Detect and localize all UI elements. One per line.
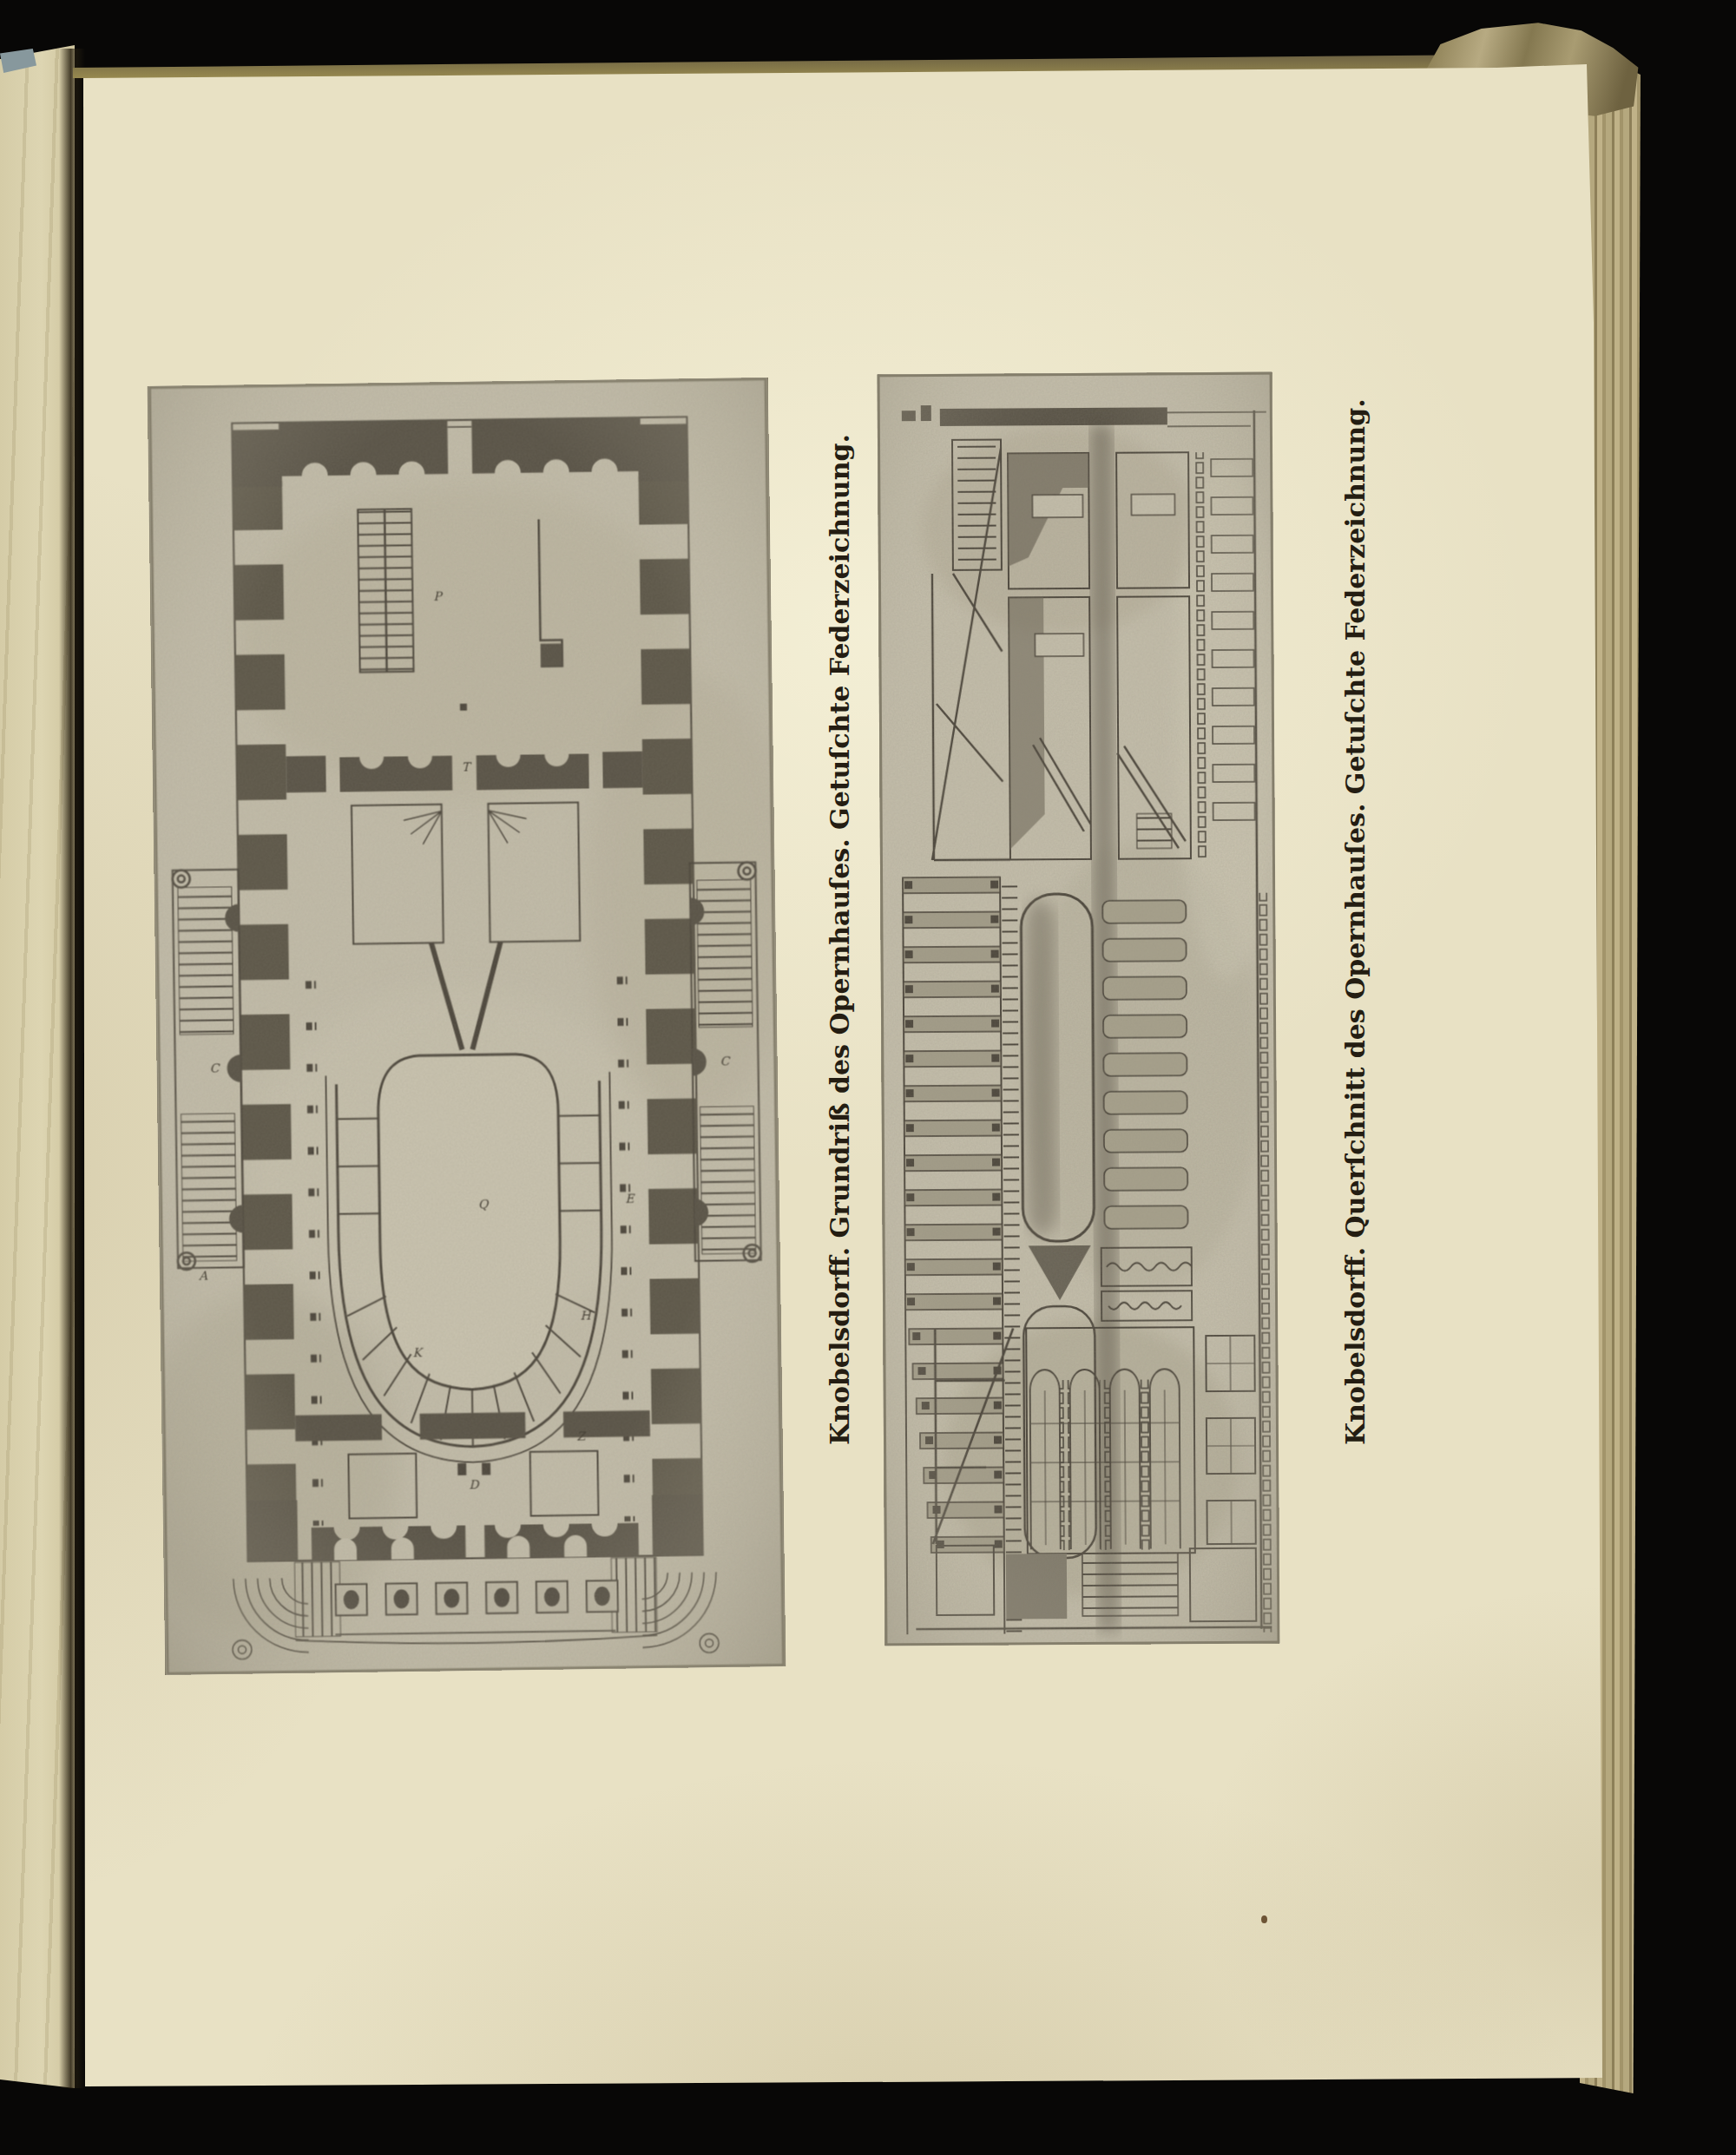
stage-staircase [358, 509, 413, 672]
scanned-book-photo: A C C D E H K P Q T Z [0, 0, 1736, 2155]
floor-plan-drawing: A C C D E H K P Q T Z [148, 378, 786, 1675]
rear-wall-band [940, 407, 1167, 426]
floor-plan-plate: A C C D E H K P Q T Z [148, 378, 786, 1675]
proscenium-pier-right [477, 754, 589, 791]
gutter-shadow [59, 49, 85, 2088]
svg-text:C: C [210, 1061, 220, 1074]
wall-chain-upper [1192, 452, 1207, 858]
proscenium-pier-left [339, 756, 452, 792]
cross-section-plate [878, 372, 1280, 1646]
cross-section-drawing [878, 372, 1280, 1646]
book-page: A C C D E H K P Q T Z [73, 62, 1606, 2090]
svg-text:Q: Q [478, 1197, 490, 1211]
parterre [378, 1054, 562, 1391]
foxing-speck [1261, 1915, 1267, 1923]
svg-text:A: A [198, 1269, 208, 1283]
caption-floor-plan: Knobelsdorff. Grundriß des Opernhauſes. … [821, 621, 859, 1445]
box-tiers [1102, 900, 1187, 1229]
svg-text:H: H [580, 1308, 592, 1322]
caption-cross-section: Knobelsdorff. Querſchnitt des Opernhauſe… [1337, 568, 1375, 1445]
svg-text:C: C [720, 1054, 730, 1068]
